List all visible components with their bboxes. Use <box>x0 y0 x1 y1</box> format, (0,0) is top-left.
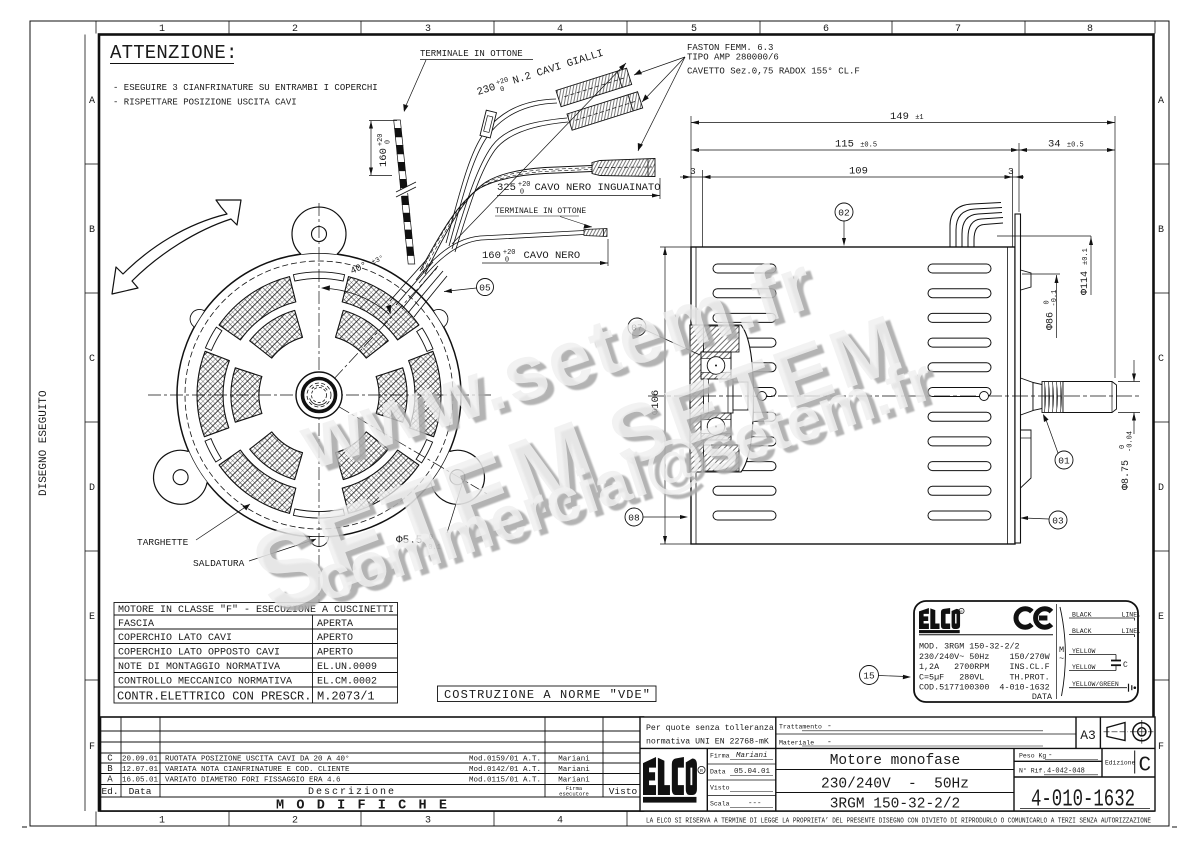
svg-text:BLACK: BLACK <box>1072 612 1092 619</box>
svg-text:LA ELCO SI RISERVA A TERMINE D: LA ELCO SI RISERVA A TERMINE DI LEGGE LA… <box>646 818 1151 826</box>
svg-text:C: C <box>89 354 95 365</box>
svg-text:1: 1 <box>159 24 165 35</box>
svg-text:4: 4 <box>557 816 563 827</box>
svg-text:D: D <box>89 483 95 494</box>
svg-text:Φ114: Φ114 <box>1080 271 1091 295</box>
svg-text:0: 0 <box>385 140 393 144</box>
svg-text:Visto: Visto <box>609 786 638 797</box>
svg-text:Mariani: Mariani <box>558 766 590 774</box>
svg-text:6: 6 <box>823 24 829 35</box>
svg-text:B: B <box>1158 225 1164 236</box>
svg-text:-: - <box>827 722 832 731</box>
svg-text:TIPO AMP 280000/6: TIPO AMP 280000/6 <box>687 53 779 63</box>
svg-text:LINE.: LINE. <box>1122 628 1142 635</box>
svg-text:1,2A 2700RPM INS.CL.F: 1,2A 2700RPM INS.CL.F <box>919 662 1050 672</box>
svg-text:Data: Data <box>710 769 726 776</box>
svg-text:COPERCHIO LATO OPPOSTO CAVI: COPERCHIO LATO OPPOSTO CAVI <box>118 648 280 659</box>
svg-text:03: 03 <box>1052 516 1064 527</box>
svg-text:APERTO: APERTO <box>317 648 353 659</box>
svg-text:B: B <box>89 225 95 236</box>
svg-text:01: 01 <box>1058 456 1070 467</box>
svg-text:230/240V~ 50Hz 150/270W: 230/240V~ 50Hz 150/270W <box>919 652 1051 662</box>
svg-text:Mariani: Mariani <box>558 777 590 785</box>
svg-text:---: --- <box>748 800 762 808</box>
svg-text:C: C <box>1158 354 1164 365</box>
svg-text:±0.1: ±0.1 <box>1082 248 1090 265</box>
svg-text:8: 8 <box>1087 24 1093 35</box>
svg-text:N° Rif.: N° Rif. <box>1019 767 1046 775</box>
svg-text:7: 7 <box>955 24 961 35</box>
svg-text:Φ86: Φ86 <box>1046 312 1057 330</box>
svg-text:-0.04: -0.04 <box>1127 431 1135 452</box>
svg-text:COPERCHIO LATO CAVI: COPERCHIO LATO CAVI <box>118 633 232 644</box>
svg-text:A: A <box>1158 96 1164 107</box>
svg-text:3: 3 <box>425 816 431 827</box>
svg-text:F: F <box>1158 742 1164 753</box>
svg-text:109: 109 <box>849 166 868 178</box>
svg-text:C=5µF 280VL TH.PROT.: C=5µF 280VL TH.PROT. <box>919 672 1050 682</box>
svg-text:YELLOW/GREEN: YELLOW/GREEN <box>1072 681 1119 688</box>
svg-text:FASTON FEMM. 6.3: FASTON FEMM. 6.3 <box>687 43 773 53</box>
svg-text:3: 3 <box>425 24 431 35</box>
svg-text:A: A <box>89 96 95 107</box>
svg-text:LINE.: LINE. <box>1122 612 1142 619</box>
svg-text:Peso Kg: Peso Kg <box>1019 753 1046 760</box>
svg-text:A3: A3 <box>1080 728 1096 743</box>
svg-text:ATTENZIONE:: ATTENZIONE: <box>110 42 238 64</box>
svg-text:~: ~ <box>1059 654 1064 664</box>
svg-text:MODIFICHE: MODIFICHE <box>276 799 456 814</box>
svg-text:esecutore: esecutore <box>559 791 589 798</box>
svg-text:C: C <box>107 754 113 764</box>
svg-text:C: C <box>1123 661 1128 670</box>
svg-text:MOD. 3RGM 150-32-2/2: MOD. 3RGM 150-32-2/2 <box>919 642 1020 652</box>
svg-text:Data: Data <box>129 786 152 797</box>
svg-text:TERMINALE IN OTTONE: TERMINALE IN OTTONE <box>495 207 586 216</box>
svg-text:F: F <box>89 742 95 753</box>
svg-text:Ed.: Ed. <box>101 786 118 797</box>
svg-text:3: 3 <box>1008 166 1014 177</box>
svg-text:FASCIA: FASCIA <box>118 619 154 630</box>
svg-text:5: 5 <box>691 24 697 35</box>
svg-text:A: A <box>107 775 113 785</box>
svg-text:B: B <box>107 764 113 774</box>
svg-text:- RISPETTARE POSIZIONE USCITA: - RISPETTARE POSIZIONE USCITA CAVI <box>113 98 297 108</box>
svg-text:COD.5177100300 4-010-1632: COD.5177100300 4-010-1632 <box>919 683 1050 693</box>
svg-text:4-042-048: 4-042-048 <box>1047 768 1085 776</box>
svg-text:TERMINALE IN OTTONE: TERMINALE IN OTTONE <box>420 49 523 59</box>
svg-text:1: 1 <box>159 816 165 827</box>
svg-text:Per quote senza tolleranza: Per quote senza tolleranza <box>646 723 774 733</box>
svg-text:M.2073/1: M.2073/1 <box>317 690 375 704</box>
svg-text:Scala: Scala <box>710 801 730 808</box>
svg-text:16.05.01: 16.05.01 <box>122 777 159 785</box>
svg-text:160: 160 <box>482 250 501 262</box>
svg-text:12.07.01: 12.07.01 <box>122 766 159 774</box>
svg-text:VARIATO DIAMETRO FORI FISSAGGI: VARIATO DIAMETRO FORI FISSAGGIO ERA 4.6 <box>165 777 341 785</box>
svg-text:Mariani: Mariani <box>736 752 768 760</box>
svg-text:230/240V - 50Hz: 230/240V - 50Hz <box>821 777 969 793</box>
svg-text:D: D <box>1158 483 1164 494</box>
svg-text:EL.CM.0002: EL.CM.0002 <box>317 677 377 688</box>
svg-text:C: C <box>1139 755 1152 778</box>
svg-text:EL.UN.0009: EL.UN.0009 <box>317 662 377 673</box>
svg-text:CONTR.ELETTRICO CON PRESCR.: CONTR.ELETTRICO CON PRESCR. <box>117 690 311 704</box>
svg-text:05.04.01: 05.04.01 <box>734 768 771 776</box>
svg-text:160: 160 <box>378 148 390 167</box>
svg-text:Φ8.75: Φ8.75 <box>1121 460 1132 490</box>
svg-text:Motore monofase: Motore monofase <box>830 753 961 769</box>
svg-text:-: - <box>827 738 832 747</box>
svg-text:E: E <box>89 612 95 623</box>
svg-text:Mariani: Mariani <box>558 756 590 764</box>
svg-text:NOTE DI MONTAGGIO NORMATIVA: NOTE DI MONTAGGIO NORMATIVA <box>118 662 280 673</box>
svg-text:02: 02 <box>838 208 850 219</box>
svg-text:3: 3 <box>690 166 696 177</box>
svg-text:15: 15 <box>863 671 875 682</box>
svg-text:Descrizione: Descrizione <box>308 786 396 798</box>
svg-text:YELLOW: YELLOW <box>1072 664 1096 671</box>
svg-text:4-010-1632: 4-010-1632 <box>1031 787 1135 814</box>
svg-text:Edizione: Edizione <box>1105 760 1135 767</box>
svg-text:Visto: Visto <box>710 785 730 792</box>
svg-text:YELLOW: YELLOW <box>1072 648 1096 655</box>
svg-text:Firma: Firma <box>710 753 730 760</box>
svg-text:CAVO NERO INGUAINATO: CAVO NERO INGUAINATO <box>535 182 661 194</box>
svg-text:2: 2 <box>292 24 298 35</box>
svg-text:-0.1: -0.1 <box>1051 290 1059 307</box>
svg-text:Materiale: Materiale <box>779 740 814 747</box>
svg-text:VARIATA NOTA CIANFRINATURE E C: VARIATA NOTA CIANFRINATURE E COD. CLIENT… <box>165 766 350 774</box>
svg-text:SALDATURA: SALDATURA <box>193 558 245 569</box>
svg-text:Mod.0142/01 A.T.: Mod.0142/01 A.T. <box>469 766 541 774</box>
svg-text:3RGM 150-32-2/2: 3RGM 150-32-2/2 <box>830 797 961 813</box>
svg-text:DISEGNO ESEGUITO: DISEGNO ESEGUITO <box>38 390 50 496</box>
svg-text:E: E <box>1158 612 1164 623</box>
svg-text:COSTRUZIONE A NORME "VDE": COSTRUZIONE A NORME "VDE" <box>444 688 650 702</box>
svg-text:4: 4 <box>557 24 563 35</box>
svg-text:TARGHETTE: TARGHETTE <box>137 537 189 548</box>
svg-text:20.09.01: 20.09.01 <box>122 756 159 764</box>
svg-text:2: 2 <box>292 816 298 827</box>
svg-text:Mod.0115/01 A.T.: Mod.0115/01 A.T. <box>469 777 541 785</box>
svg-text:RUOTATA POSIZIONE USCITA CAVI: RUOTATA POSIZIONE USCITA CAVI DA 20 A 40… <box>165 755 350 764</box>
svg-text:CAVO NERO: CAVO NERO <box>524 250 581 262</box>
svg-text:normativa UNI EN 22768-mK: normativa UNI EN 22768-mK <box>646 737 769 747</box>
svg-text:CONTROLLO MECCANICO NORMATIVA: CONTROLLO MECCANICO NORMATIVA <box>118 677 292 688</box>
svg-text:Trattamento: Trattamento <box>779 724 822 731</box>
svg-text:BLACK: BLACK <box>1072 628 1092 635</box>
svg-text:Mod.0159/01 A.T.: Mod.0159/01 A.T. <box>469 756 541 764</box>
svg-text:APERTO: APERTO <box>317 633 353 644</box>
svg-text:05: 05 <box>479 283 491 294</box>
svg-text:-: - <box>1048 752 1053 760</box>
svg-text:R: R <box>700 768 703 774</box>
svg-text:CAVETTO Sez.0,75 RADOX 155° CL: CAVETTO Sez.0,75 RADOX 155° CL.F <box>687 67 860 77</box>
svg-text:325: 325 <box>497 182 516 194</box>
svg-text:DATA: DATA <box>1032 692 1053 702</box>
svg-text:- ESEGUIRE 3 CIANFRINATURE SU: - ESEGUIRE 3 CIANFRINATURE SU ENTRAMBI I… <box>113 83 378 93</box>
